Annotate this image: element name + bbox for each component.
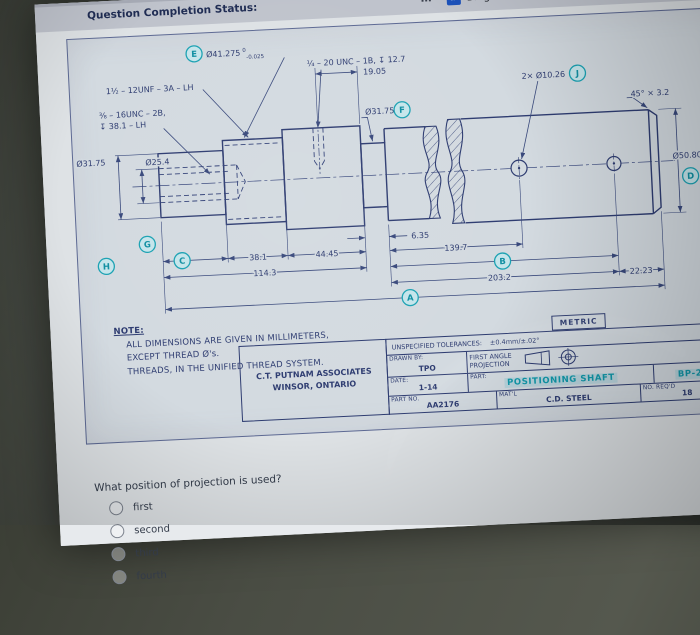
drawing-number: BP-23 (675, 367, 700, 379)
dim-114-3: 114.3 (253, 268, 276, 278)
option-second[interactable]: second (110, 516, 284, 538)
balloon-G-letter: G (144, 240, 151, 250)
option-second-label: second (134, 523, 170, 536)
engineering-drawing: Ø41.2750-0.025 1½ – 12UNF – 3A – LH ⅜ – … (66, 7, 700, 445)
dim-dia-31-75-left: Ø31.75 (76, 157, 106, 168)
dim-6-35: 6.35 (411, 231, 429, 241)
balloon-F-letter: F (399, 106, 405, 116)
balloon-G: G (139, 236, 156, 253)
dim-d-value: Ø50.80 (672, 149, 700, 160)
balloon-J: J (569, 65, 586, 82)
balloon-A: A (402, 289, 419, 306)
balloon-J-letter: J (575, 69, 580, 79)
radio-first[interactable] (109, 501, 124, 516)
date-label: DATE: (390, 378, 408, 385)
dim-d-callout: Ø50.800-0.025 (672, 148, 700, 164)
option-first[interactable]: first (109, 493, 283, 515)
balloon-C: C (174, 252, 191, 269)
first-angle-projection-symbol (521, 347, 586, 368)
part-label: PART: (470, 374, 487, 381)
thread-callout-unc2b-line1: ⅜ – 16UNC – 2B, (99, 108, 166, 120)
balloon-E: E (186, 45, 203, 62)
radio-third[interactable] (111, 547, 126, 562)
balloon-F: F (394, 101, 411, 118)
dim-139-7: 139.7 (444, 243, 467, 253)
bookmark-bing-label: Bing (466, 0, 490, 3)
date-value: 1-14 (419, 382, 438, 392)
material-value: C.D. STEEL (546, 393, 592, 404)
radio-second[interactable] (110, 524, 125, 539)
dim-e-value: Ø41.275 (206, 48, 241, 60)
option-fourth[interactable]: fourth (112, 562, 286, 584)
thread-callout-unf: 1½ – 12UNF – 3A – LH (106, 83, 194, 96)
dim-22-23: 22.23 (630, 266, 653, 276)
tolerances-value: ±0.4mm/±.02° (490, 336, 540, 346)
quiz-page: Ø41.2750-0.025 1½ – 12UNF – 3A – LH ⅜ – … (36, 0, 700, 546)
projection-label-2: PROJECTION (469, 360, 509, 370)
dim-e-tol-bottom: -0.025 (246, 54, 265, 61)
dim-38-1: 38.1 (249, 253, 267, 263)
dimension-lines (114, 56, 683, 311)
drawn-by-value: TPO (419, 363, 436, 373)
balloon-B-letter: B (499, 257, 506, 267)
hidden-thread-lines (157, 128, 327, 223)
dim-holes: 2× Ø10.26 (521, 69, 565, 81)
material-label: MAT'L (499, 391, 517, 398)
shaft-drawing-svg: Ø41.2750-0.025 1½ – 12UNF – 3A – LH ⅜ – … (67, 8, 700, 350)
quiz-question: What position of projection is used? fir… (94, 473, 287, 594)
drawing-number-cell: BP-23 (654, 361, 700, 382)
bookmark-bing[interactable]: b Bing (446, 0, 490, 5)
balloon-B: B (494, 253, 511, 270)
option-fourth-label: fourth (136, 569, 167, 581)
dim-e-callout: Ø41.2750-0.025 (206, 46, 265, 62)
monitor-screen: Question Completion Status: … b Bing Jav… (34, 0, 700, 546)
company-block: C.T. PUTNAM ASSOCIATES WINSOR, ONTARIO (238, 339, 390, 422)
req-qty-value: 18 (682, 388, 693, 397)
drawn-by-cell: DRAWN BY: TPO (387, 352, 468, 377)
balloon-E-letter: E (191, 50, 197, 60)
balloon-A-letter: A (407, 293, 414, 303)
dim-19-05: 19.05 (363, 67, 386, 77)
question-completion-status: Question Completion Status: (87, 2, 258, 22)
dim-f-value: Ø31.75 (365, 105, 395, 116)
radio-fourth[interactable] (112, 570, 127, 585)
bookmarks-overflow-icon[interactable]: … (420, 0, 432, 5)
part-no-value: AA2176 (427, 399, 460, 410)
balloon-D-letter: D (687, 172, 695, 182)
dim-44-45: 44.45 (315, 249, 338, 259)
req-qty-label: NO. REQ'D (643, 383, 676, 391)
option-third-label: third (135, 547, 159, 559)
option-first-label: first (133, 501, 153, 513)
balloon-H: H (98, 258, 115, 275)
bing-icon: b (446, 0, 461, 5)
dim-chamfer: 45° × 3.2 (630, 88, 669, 99)
balloon-H-letter: H (103, 262, 111, 272)
tolerances-label: UNSPECIFIED TOLERANCES: (391, 339, 482, 351)
drawn-by-label: DRAWN BY: (389, 355, 423, 363)
projection-label: FIRST ANGLE PROJECTION (469, 352, 512, 370)
question-text: What position of projection is used? (94, 473, 282, 494)
thread-callout-unc2b-line2: ↧ 38.1 – LH (99, 120, 146, 131)
shaft-centerline (133, 160, 676, 187)
dim-dia-25-4: Ø25.4 (145, 156, 170, 167)
balloon-C-letter: C (179, 257, 186, 267)
part-no-label: PART NO. (391, 396, 419, 403)
balloon-D: D (682, 167, 699, 184)
option-third[interactable]: third (111, 539, 285, 561)
dim-203-2: 203.2 (488, 273, 511, 283)
req-qty-cell: NO. REQ'D 18 (641, 379, 700, 401)
dim-e-tol-top: 0 (242, 48, 246, 54)
thread-callout-unc1b: ¼ – 20 UNC – 1B, ↧ 12.7 (306, 55, 405, 69)
